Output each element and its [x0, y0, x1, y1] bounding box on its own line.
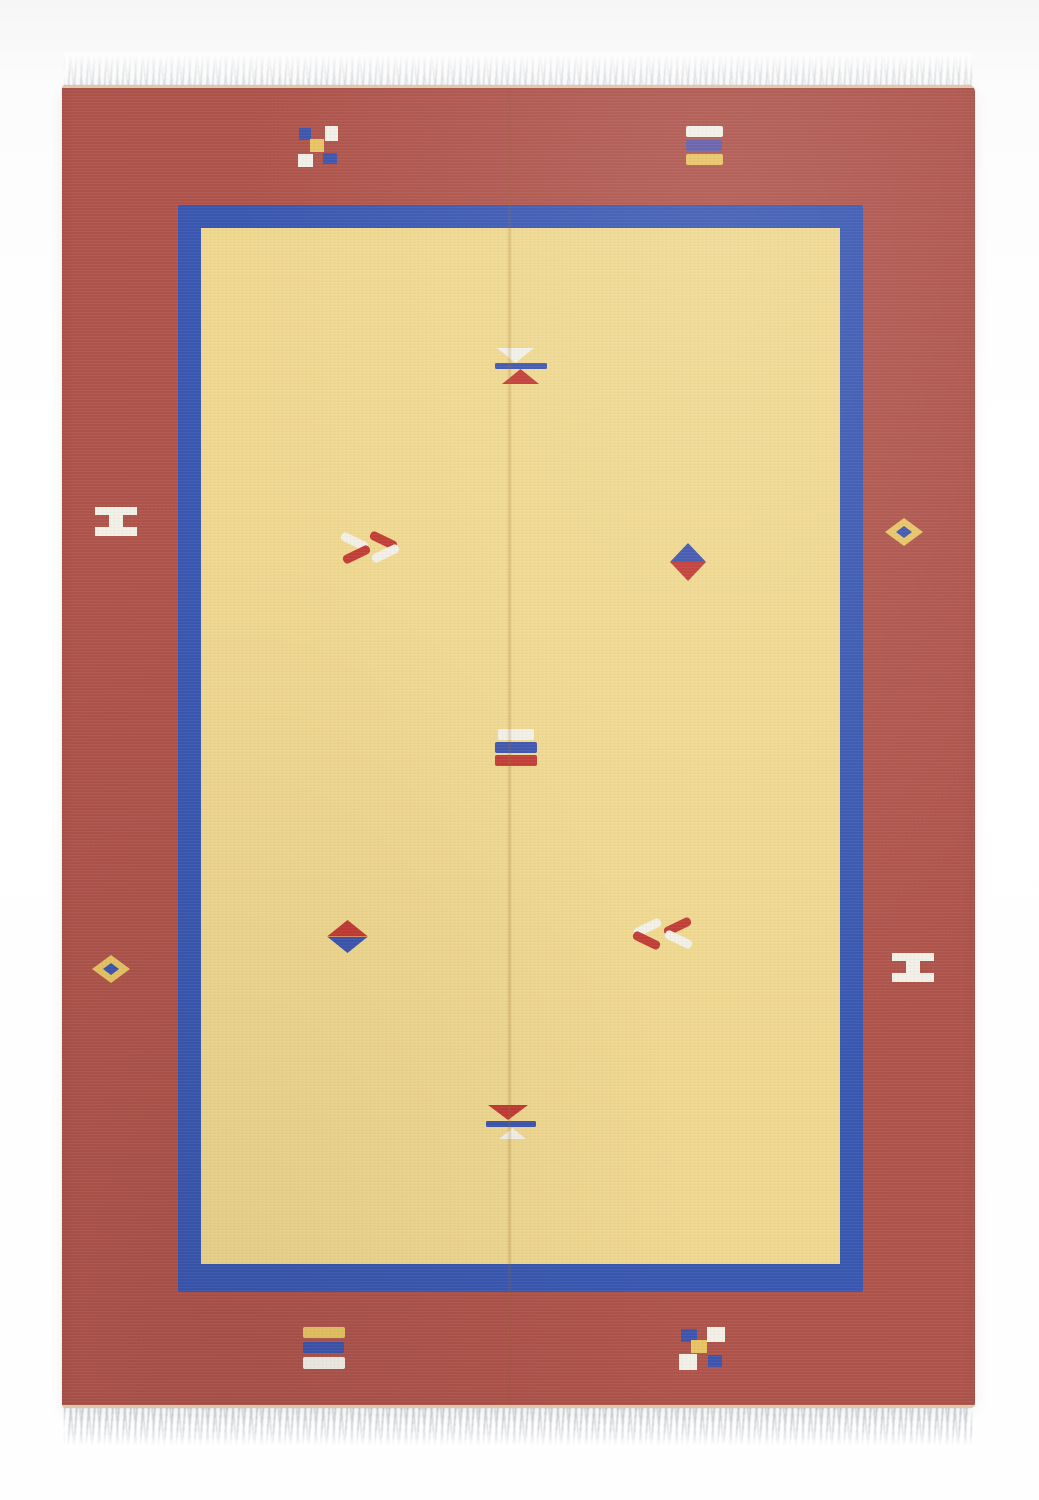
checker-square	[691, 1340, 707, 1353]
h-stem	[906, 960, 920, 974]
diamond-bottom-half	[327, 937, 368, 954]
chevron-stroke	[631, 930, 661, 951]
border-diamond-motif	[92, 955, 130, 983]
diamond-top-half	[327, 920, 368, 937]
split-diamond-motif	[327, 920, 368, 953]
stripe	[686, 154, 723, 165]
stripe	[498, 729, 534, 740]
stripe	[495, 742, 537, 753]
checker-motif	[679, 1327, 725, 1371]
h-bar	[95, 527, 137, 536]
checker-square	[310, 139, 324, 152]
hourglass-bottom-triangle	[502, 369, 539, 384]
stripe	[686, 140, 722, 151]
hourglass-bottom-triangle	[499, 1128, 526, 1139]
chevron-stroke	[663, 929, 693, 950]
checker-square	[298, 154, 313, 167]
stripes-motif	[303, 1327, 345, 1369]
checker-square	[708, 1355, 722, 1367]
diamond-top-half	[670, 543, 706, 562]
hourglass-motif	[492, 347, 548, 385]
h-motif	[892, 953, 934, 982]
hourglass-bar	[495, 363, 547, 369]
kilim-rug	[62, 85, 975, 1408]
border-diamond-motif	[885, 518, 923, 546]
h-stem	[109, 514, 123, 528]
stripe	[686, 126, 723, 137]
stripe	[303, 1327, 345, 1338]
hourglass-top-triangle	[497, 348, 534, 363]
h-bar	[892, 973, 934, 982]
chevrons-motif	[340, 533, 406, 567]
photo-background	[0, 0, 1039, 1500]
stripe	[303, 1342, 344, 1353]
checker-motif	[298, 125, 338, 167]
checker-square	[325, 126, 338, 141]
rug-fringe-bottom	[64, 1406, 972, 1448]
chevrons-motif	[630, 918, 700, 953]
checker-square	[323, 153, 337, 164]
split-diamond-motif	[670, 543, 706, 581]
hourglass-motif	[486, 1105, 538, 1141]
hourglass-top-triangle	[488, 1105, 528, 1120]
hourglass-bar	[486, 1121, 536, 1127]
h-motif	[95, 507, 137, 536]
stripes-motif	[495, 729, 537, 766]
checker-square	[707, 1327, 725, 1342]
checker-square	[679, 1354, 697, 1370]
diamond-bottom-half	[670, 562, 706, 581]
stripes-motif	[686, 126, 723, 165]
rug-fringe-top	[64, 52, 972, 88]
stripe	[303, 1357, 345, 1369]
stripe	[495, 755, 537, 766]
